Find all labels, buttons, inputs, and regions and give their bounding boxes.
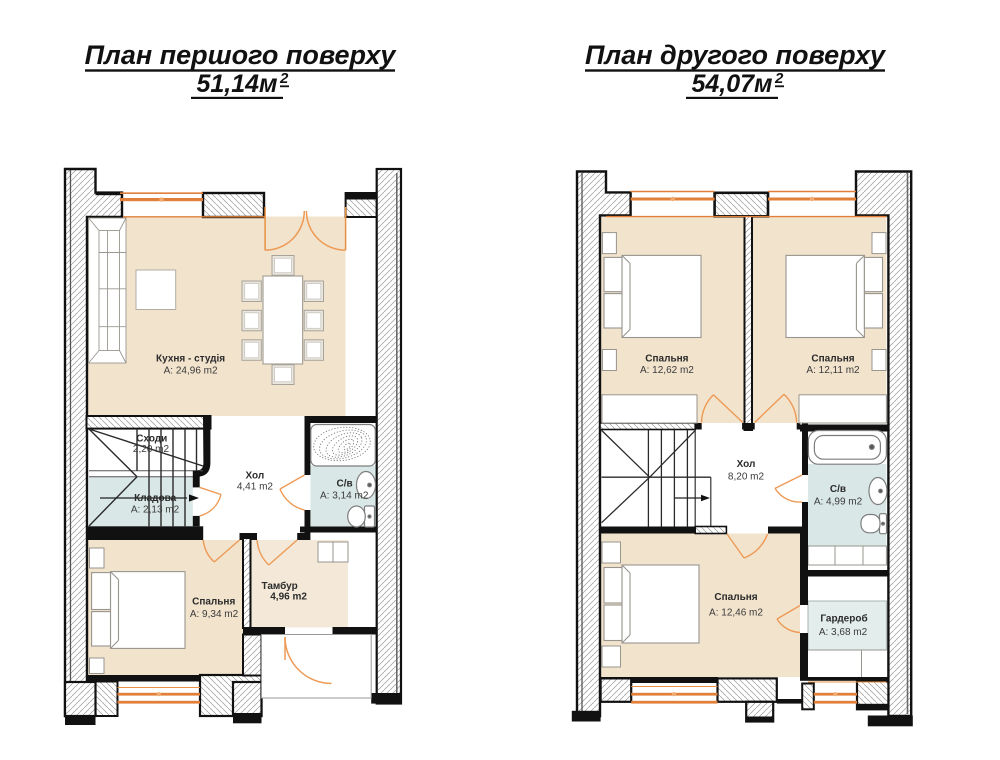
svg-text:А: 4,99 m2: А: 4,99 m2 — [814, 496, 863, 507]
svg-text:А: 9,34 m2: А: 9,34 m2 — [190, 609, 239, 620]
svg-text:А: 3,68 m2: А: 3,68 m2 — [819, 627, 868, 638]
svg-text:Спальня: Спальня — [811, 354, 854, 365]
svg-text:51,14м: 51,14м — [196, 70, 277, 98]
svg-text:Хол: Хол — [737, 459, 756, 470]
svg-text:А: 12,46 m2: А: 12,46 m2 — [709, 607, 763, 618]
svg-text:А: 3,14 m2: А: 3,14 m2 — [320, 490, 369, 501]
svg-text:Гардероб: Гардероб — [820, 612, 867, 624]
svg-text:Сходи: Сходи — [136, 434, 167, 445]
svg-text:4,96 m2: 4,96 m2 — [270, 591, 307, 602]
svg-text:Хол: Хол — [246, 470, 265, 481]
svg-text:8,20 m2: 8,20 m2 — [728, 472, 765, 483]
svg-text:А: 12,11 m2: А: 12,11 m2 — [806, 365, 860, 376]
svg-text:Тамбур: Тамбур — [261, 580, 297, 592]
svg-text:План першого поверху: План першого поверху — [85, 40, 398, 70]
svg-text:2: 2 — [279, 70, 289, 87]
svg-text:А: 24,96 m2: А: 24,96 m2 — [164, 366, 218, 377]
svg-text:4,41 m2: 4,41 m2 — [237, 482, 274, 493]
svg-text:Кладова: Кладова — [134, 493, 176, 504]
svg-text:2: 2 — [774, 70, 784, 87]
svg-text:С/в: С/в — [337, 479, 353, 490]
svg-text:А: 2,13 m2: А: 2,13 m2 — [131, 505, 180, 516]
svg-text:Кухня - студія: Кухня - студія — [156, 354, 225, 365]
svg-text:С/в: С/в — [830, 484, 846, 495]
svg-text:План другого поверху: План другого поверху — [585, 40, 887, 70]
svg-text:54,07м: 54,07м — [691, 70, 772, 98]
svg-text:Спальня: Спальня — [714, 592, 757, 603]
svg-text:Спальня: Спальня — [192, 596, 235, 607]
svg-text:2,20 m2: 2,20 m2 — [133, 444, 170, 455]
svg-text:Спальня: Спальня — [645, 354, 688, 365]
svg-text:А: 12,62 m2: А: 12,62 m2 — [640, 365, 694, 376]
